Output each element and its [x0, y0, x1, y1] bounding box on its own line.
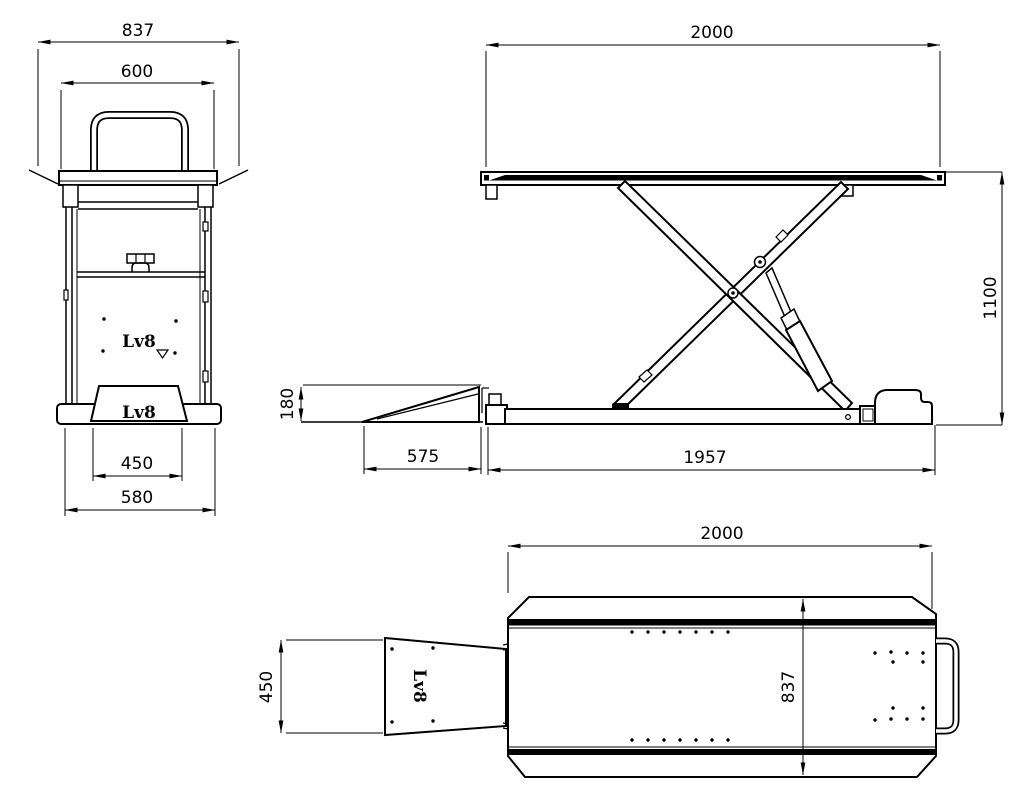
- logo-triangle: [157, 350, 168, 358]
- cylinder-top-pin: [758, 260, 762, 264]
- logo-dot: [431, 719, 434, 722]
- hole-dot: [921, 651, 924, 654]
- dim-label-837-plan: 837: [779, 671, 799, 703]
- dim-label-180: 180: [278, 388, 298, 420]
- plan-handle: [936, 641, 956, 731]
- ramp-plan: [385, 638, 506, 735]
- hinge-tick: [203, 291, 208, 302]
- base-pin: [846, 415, 851, 420]
- side-dim-ramp-length: 575: [364, 426, 481, 474]
- frame-corner-block-left: [63, 185, 78, 207]
- hole-dot: [921, 717, 924, 720]
- dim-label-600: 600: [121, 62, 153, 82]
- hole-dot: [678, 738, 681, 741]
- front-dim-ramp-width: 450: [93, 428, 182, 481]
- platform-deck-band: [484, 175, 942, 181]
- hole-dot: [905, 651, 908, 654]
- pedal-top: [127, 254, 154, 263]
- front-view: 837 600: [29, 21, 248, 516]
- side-base: [482, 388, 932, 424]
- hinge-tick: [203, 371, 208, 382]
- hole-dot: [662, 738, 665, 741]
- hole-dot: [630, 738, 633, 741]
- hole-dot: [873, 651, 876, 654]
- base-rail: [505, 409, 861, 424]
- dim-label-1957: 1957: [683, 448, 726, 468]
- front-handle-bar: [94, 115, 185, 172]
- dim-label-1100: 1100: [981, 276, 1001, 319]
- hole-dot: [889, 717, 892, 720]
- side-ramp: [301, 387, 483, 422]
- front-body-posts: [64, 207, 211, 406]
- platform-rail-top: [508, 619, 936, 626]
- hole-dot: [710, 738, 713, 741]
- base-hook: [489, 394, 501, 405]
- brand-logo-text-ramp: Lv8: [409, 669, 429, 703]
- front-logo: Lv8: [101, 317, 177, 358]
- dim-label-837-front: 837: [122, 21, 154, 41]
- hole-dot: [905, 717, 908, 720]
- platform-chamfer-left: [29, 170, 58, 184]
- hole-dot: [873, 718, 876, 721]
- drawing-svg: 837 600: [0, 0, 1024, 789]
- logo-dot: [102, 317, 105, 320]
- side-platform: [481, 172, 945, 199]
- logo-dot: [390, 720, 393, 723]
- logo-dot: [101, 349, 104, 352]
- hole-dot: [646, 738, 649, 741]
- hole-dot: [889, 650, 892, 653]
- hole-dot: [630, 630, 633, 633]
- platform-chamfer-right: [219, 170, 248, 184]
- logo-dot: [431, 646, 434, 649]
- dim-label-450-plan: 450: [257, 671, 277, 703]
- brand-logo-text: Lv8: [122, 332, 156, 352]
- hole-dot: [710, 630, 713, 633]
- side-dim-base-length: 1957: [488, 425, 935, 475]
- logo-dot: [174, 319, 177, 322]
- foot-pedal-block: [875, 390, 932, 424]
- hole-dot: [678, 630, 681, 633]
- handle-tube-outer: [936, 641, 956, 731]
- plan-ramp: Lv8: [385, 638, 508, 735]
- handle-tube-inner: [94, 115, 185, 172]
- base-end-right-inner: [863, 409, 873, 421]
- scissor-pivot-pin: [731, 291, 735, 295]
- pedal-arch: [132, 263, 149, 272]
- hole-dot: [921, 660, 924, 663]
- dim-label-2000-side: 2000: [690, 23, 733, 43]
- logo-dot: [173, 351, 176, 354]
- dim-label-575: 575: [407, 447, 439, 467]
- logo-dot: [390, 647, 393, 650]
- hole-dot: [662, 630, 665, 633]
- side-dim-platform-length: 2000: [486, 23, 940, 167]
- ramp-wedge: [362, 387, 479, 422]
- dim-label-2000-plan: 2000: [700, 524, 743, 544]
- plan-dim-ramp-width: 450: [257, 640, 383, 733]
- hole-dot: [694, 630, 697, 633]
- plan-view: 2000 837: [257, 524, 956, 777]
- hole-dot: [646, 630, 649, 633]
- side-dim-raised-height: 1100: [936, 172, 1002, 425]
- hole-dot: [694, 738, 697, 741]
- hole-dot: [921, 706, 924, 709]
- front-dim-overall-width: 837: [38, 21, 239, 166]
- base-end-left: [486, 405, 507, 424]
- hinge-tick: [64, 290, 68, 300]
- front-foot-pedal: [127, 254, 154, 272]
- handle-tube-outer: [94, 115, 185, 172]
- side-view: 2000: [278, 23, 1002, 475]
- hole-dot: [891, 706, 894, 709]
- hole-dot: [726, 630, 729, 633]
- scissor-mechanism: [612, 181, 852, 412]
- dim-label-580: 580: [121, 488, 153, 508]
- hole-dot: [891, 660, 894, 663]
- platform-rail-bottom: [508, 749, 936, 755]
- deck-stop-left: [486, 185, 497, 199]
- dim-label-450-front: 450: [121, 454, 153, 474]
- hinge-tick: [203, 222, 208, 231]
- technical-drawing-canvas: 837 600: [0, 0, 1024, 789]
- platform-end: [59, 171, 217, 185]
- frame-corner-block-right: [198, 185, 213, 207]
- brand-logo-text-small: Lv8: [122, 403, 156, 423]
- hole-dot: [726, 738, 729, 741]
